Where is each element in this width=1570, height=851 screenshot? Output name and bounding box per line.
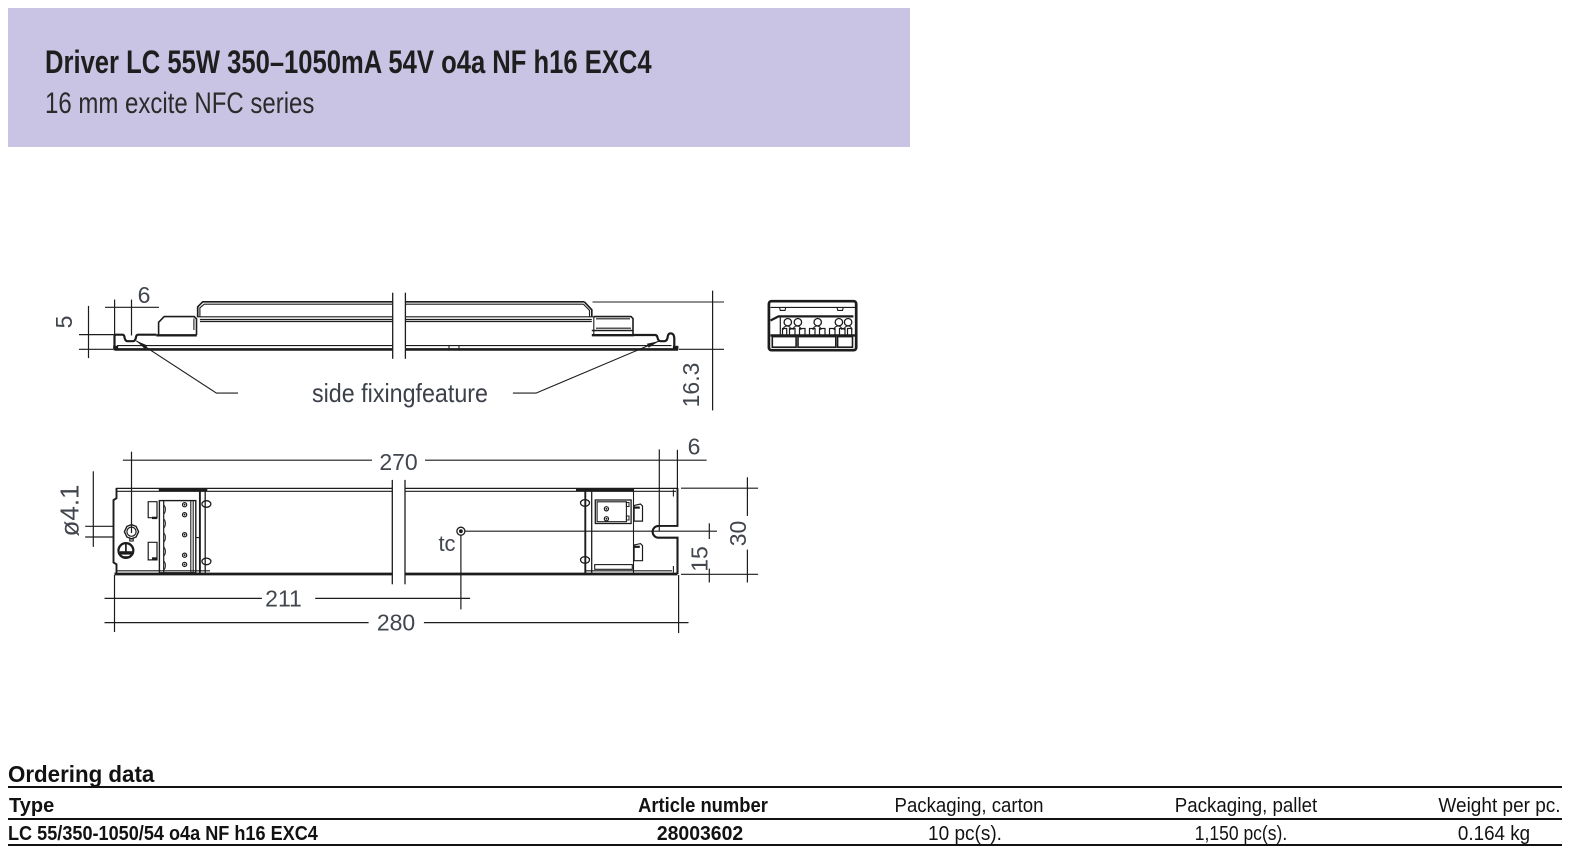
svg-text:side fixingfeature: side fixingfeature: [312, 378, 488, 408]
svg-text:270: 270: [379, 449, 417, 475]
svg-text:ø4.1: ø4.1: [54, 484, 84, 536]
svg-text:6: 6: [138, 282, 151, 308]
svg-text:280: 280: [377, 610, 415, 636]
svg-text:5: 5: [51, 316, 77, 329]
svg-text:15: 15: [687, 546, 713, 572]
svg-text:tc: tc: [438, 531, 455, 556]
svg-text:6: 6: [688, 434, 701, 460]
svg-text:30: 30: [725, 521, 751, 547]
svg-text:211: 211: [265, 585, 302, 611]
svg-text:16.3: 16.3: [678, 363, 704, 408]
